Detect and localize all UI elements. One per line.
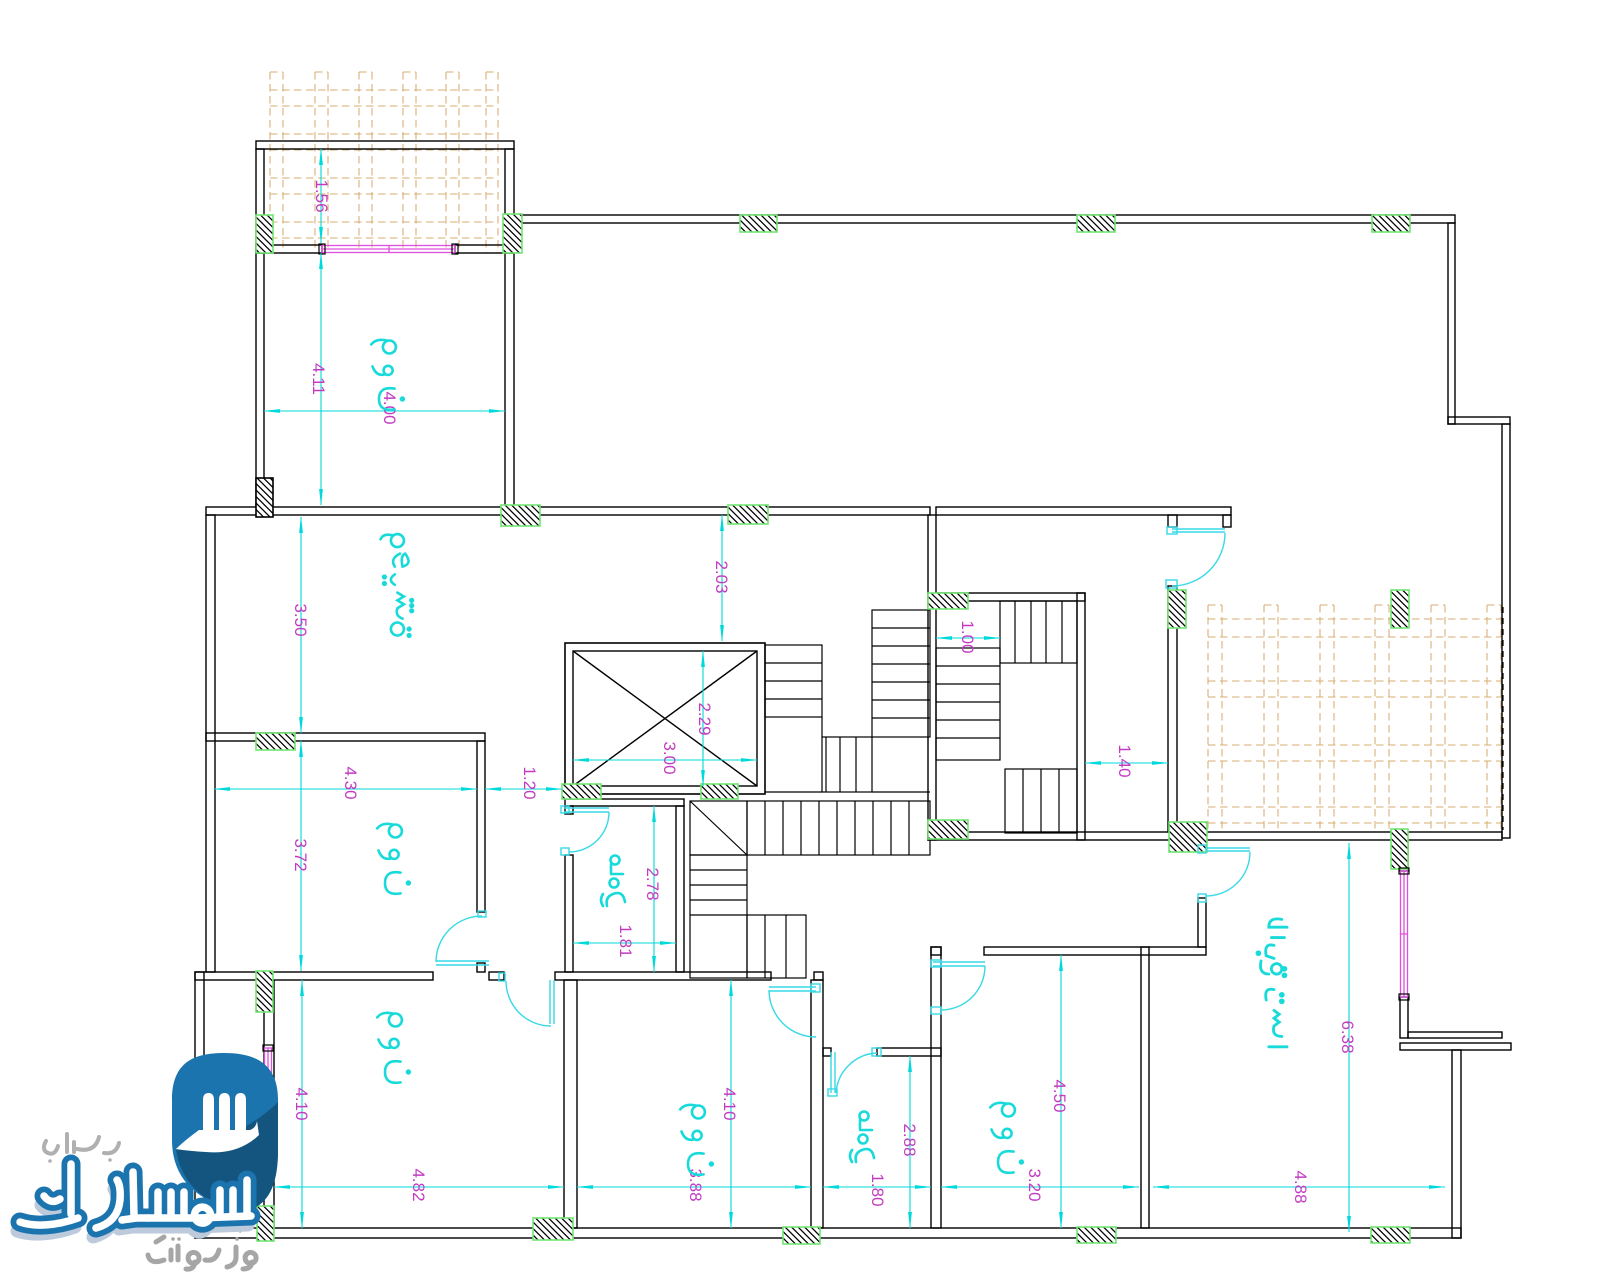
svg-text:2.03: 2.03 — [712, 560, 731, 593]
svg-text:2.29: 2.29 — [695, 702, 714, 735]
svg-text:1.80: 1.80 — [868, 1173, 887, 1206]
svg-text:2.78: 2.78 — [643, 867, 662, 900]
svg-text:3.20: 3.20 — [1025, 1168, 1044, 1201]
svg-text:1.00: 1.00 — [958, 620, 977, 653]
svg-text:1.56: 1.56 — [312, 179, 331, 212]
svg-text:3.72: 3.72 — [291, 838, 310, 871]
svg-text:4.82: 4.82 — [409, 1168, 428, 1201]
svg-text:1.20: 1.20 — [520, 766, 539, 799]
svg-text:3.00: 3.00 — [660, 741, 679, 774]
svg-text:1.81: 1.81 — [616, 924, 635, 957]
svg-text:6.38: 6.38 — [1338, 1020, 1357, 1053]
svg-text:4.11: 4.11 — [309, 363, 328, 395]
svg-text:4.10: 4.10 — [720, 1087, 739, 1120]
svg-text:4.50: 4.50 — [1050, 1079, 1069, 1112]
svg-text:2.88: 2.88 — [900, 1123, 919, 1156]
svg-text:4.88: 4.88 — [1291, 1170, 1310, 1203]
svg-text:3.50: 3.50 — [291, 603, 310, 636]
svg-text:4.30: 4.30 — [341, 766, 360, 799]
svg-text:4.10: 4.10 — [292, 1087, 311, 1120]
svg-text:1.40: 1.40 — [1115, 744, 1134, 777]
